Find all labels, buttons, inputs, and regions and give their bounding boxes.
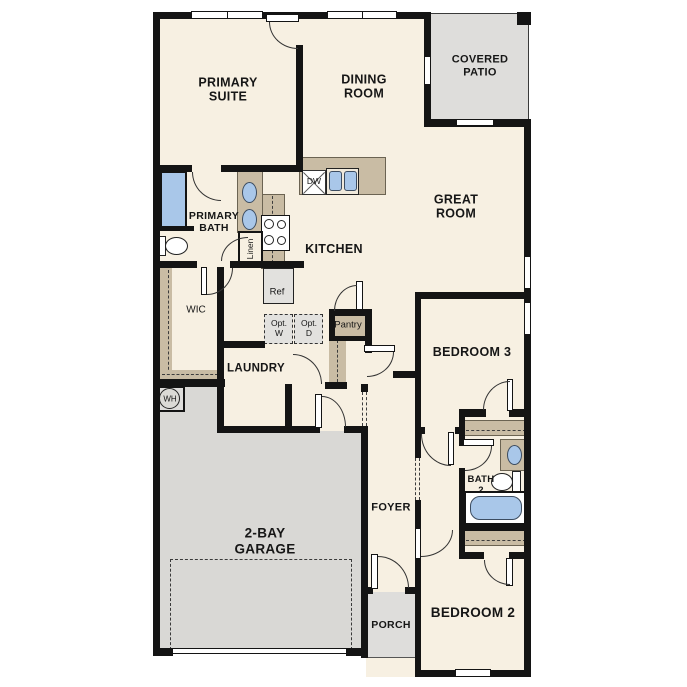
wall [156,165,192,172]
wall [424,84,431,124]
room-label-primary-bath: PRIMARY BATH [189,210,239,234]
wall [217,426,320,433]
burner-4 [277,236,286,245]
bedroom3-closet-dash [466,430,526,431]
bathtub [470,496,522,520]
wall [153,261,197,268]
wall [524,119,531,259]
cased-opening-dashed [419,458,420,500]
wall [459,525,531,531]
bedroom2-closet-shelf [464,530,528,546]
front-door-leaf [371,554,378,589]
wall [489,670,531,677]
wall [325,382,347,389]
kitchen-sink-bowl-1 [329,171,342,191]
window [455,669,491,677]
wall [153,648,173,656]
wall [524,334,531,677]
window [191,11,228,19]
shower [160,171,187,229]
label-wh: WH [163,394,176,403]
room-label-covered-patio: COVERED PATIO [452,53,509,78]
wic-shelf-left [160,268,172,382]
bedroom2-closet-dash [466,540,526,541]
cased-opening-dashed [415,458,416,500]
room-label-wic: WIC [186,304,205,316]
wall [415,558,421,677]
wall [405,587,421,594]
wall [230,261,304,268]
vanity-sink-1 [242,182,257,203]
wall [221,165,303,172]
garage-entry-door-leaf [315,394,322,428]
bath2-sink [507,445,522,465]
wall [153,12,160,656]
patio-corner-post [517,12,531,25]
window [327,11,363,19]
garage-door [171,648,348,654]
garage-door-dashed-path [170,559,352,650]
wall [415,500,421,529]
label-opt-d: Opt. D [301,319,317,339]
door-leaf [463,439,494,446]
floor-plan: PRIMARY SUITE DINING ROOM COVERED PATIO … [0,0,687,687]
room-label-laundry: LAUNDRY [227,362,285,375]
label-ref: Ref [270,288,285,299]
room-label-primary-suite: PRIMARY SUITE [198,76,257,105]
room-label-bath2: BATH 2 [468,475,495,497]
wall [361,426,368,658]
label-pantry: Pantry [334,321,361,332]
window [424,56,431,86]
wall [217,341,265,348]
room-label-kitchen: KITCHEN [305,242,363,256]
door-leaf [364,345,395,352]
wall [415,292,531,299]
wall [459,552,484,559]
wall [361,384,368,392]
window [524,256,531,290]
window [362,11,397,19]
label-opt-w: Opt. W [271,319,287,339]
wall [415,292,421,432]
room-label-porch: PORCH [371,619,410,631]
burner-3 [264,235,274,245]
room-label-bedroom2: BEDROOM 2 [431,605,515,621]
wall [415,670,457,677]
wall [296,45,303,172]
window [227,11,263,19]
window [524,302,531,336]
bath2-toilet-tank [512,471,521,492]
vanity-sink-2 [242,209,257,230]
burner-2 [277,220,286,229]
wall [459,468,465,559]
room-label-great-room: GREAT ROOM [434,193,478,222]
patio-slider-door [456,119,494,126]
burner-1 [264,219,274,229]
primary-toilet-bowl [165,237,188,255]
room-label-garage: 2-BAY GARAGE [234,525,295,556]
room-label-dining-room: DINING ROOM [341,73,387,102]
wall [329,336,367,341]
label-dw: DW [307,177,321,187]
cased-opening-dashed [362,392,363,426]
room-label-foyer: FOYER [371,502,410,515]
door-leaf [266,14,299,22]
label-linen: Linen [246,239,256,260]
wall [285,384,292,431]
wall [415,427,425,434]
kitchen-sink-bowl-2 [344,171,357,191]
wic-shelf-left-dash [168,270,169,380]
door-leaf [356,281,363,310]
wall [153,379,225,387]
wall [424,12,431,58]
wic-shelf-bottom-dash [162,374,218,375]
cased-opening-dashed [366,392,367,426]
bedroom3-closet-shelf [464,420,528,436]
pantry-shelf-dash [337,340,338,382]
room-label-bedroom3: BEDROOM 3 [433,345,511,359]
